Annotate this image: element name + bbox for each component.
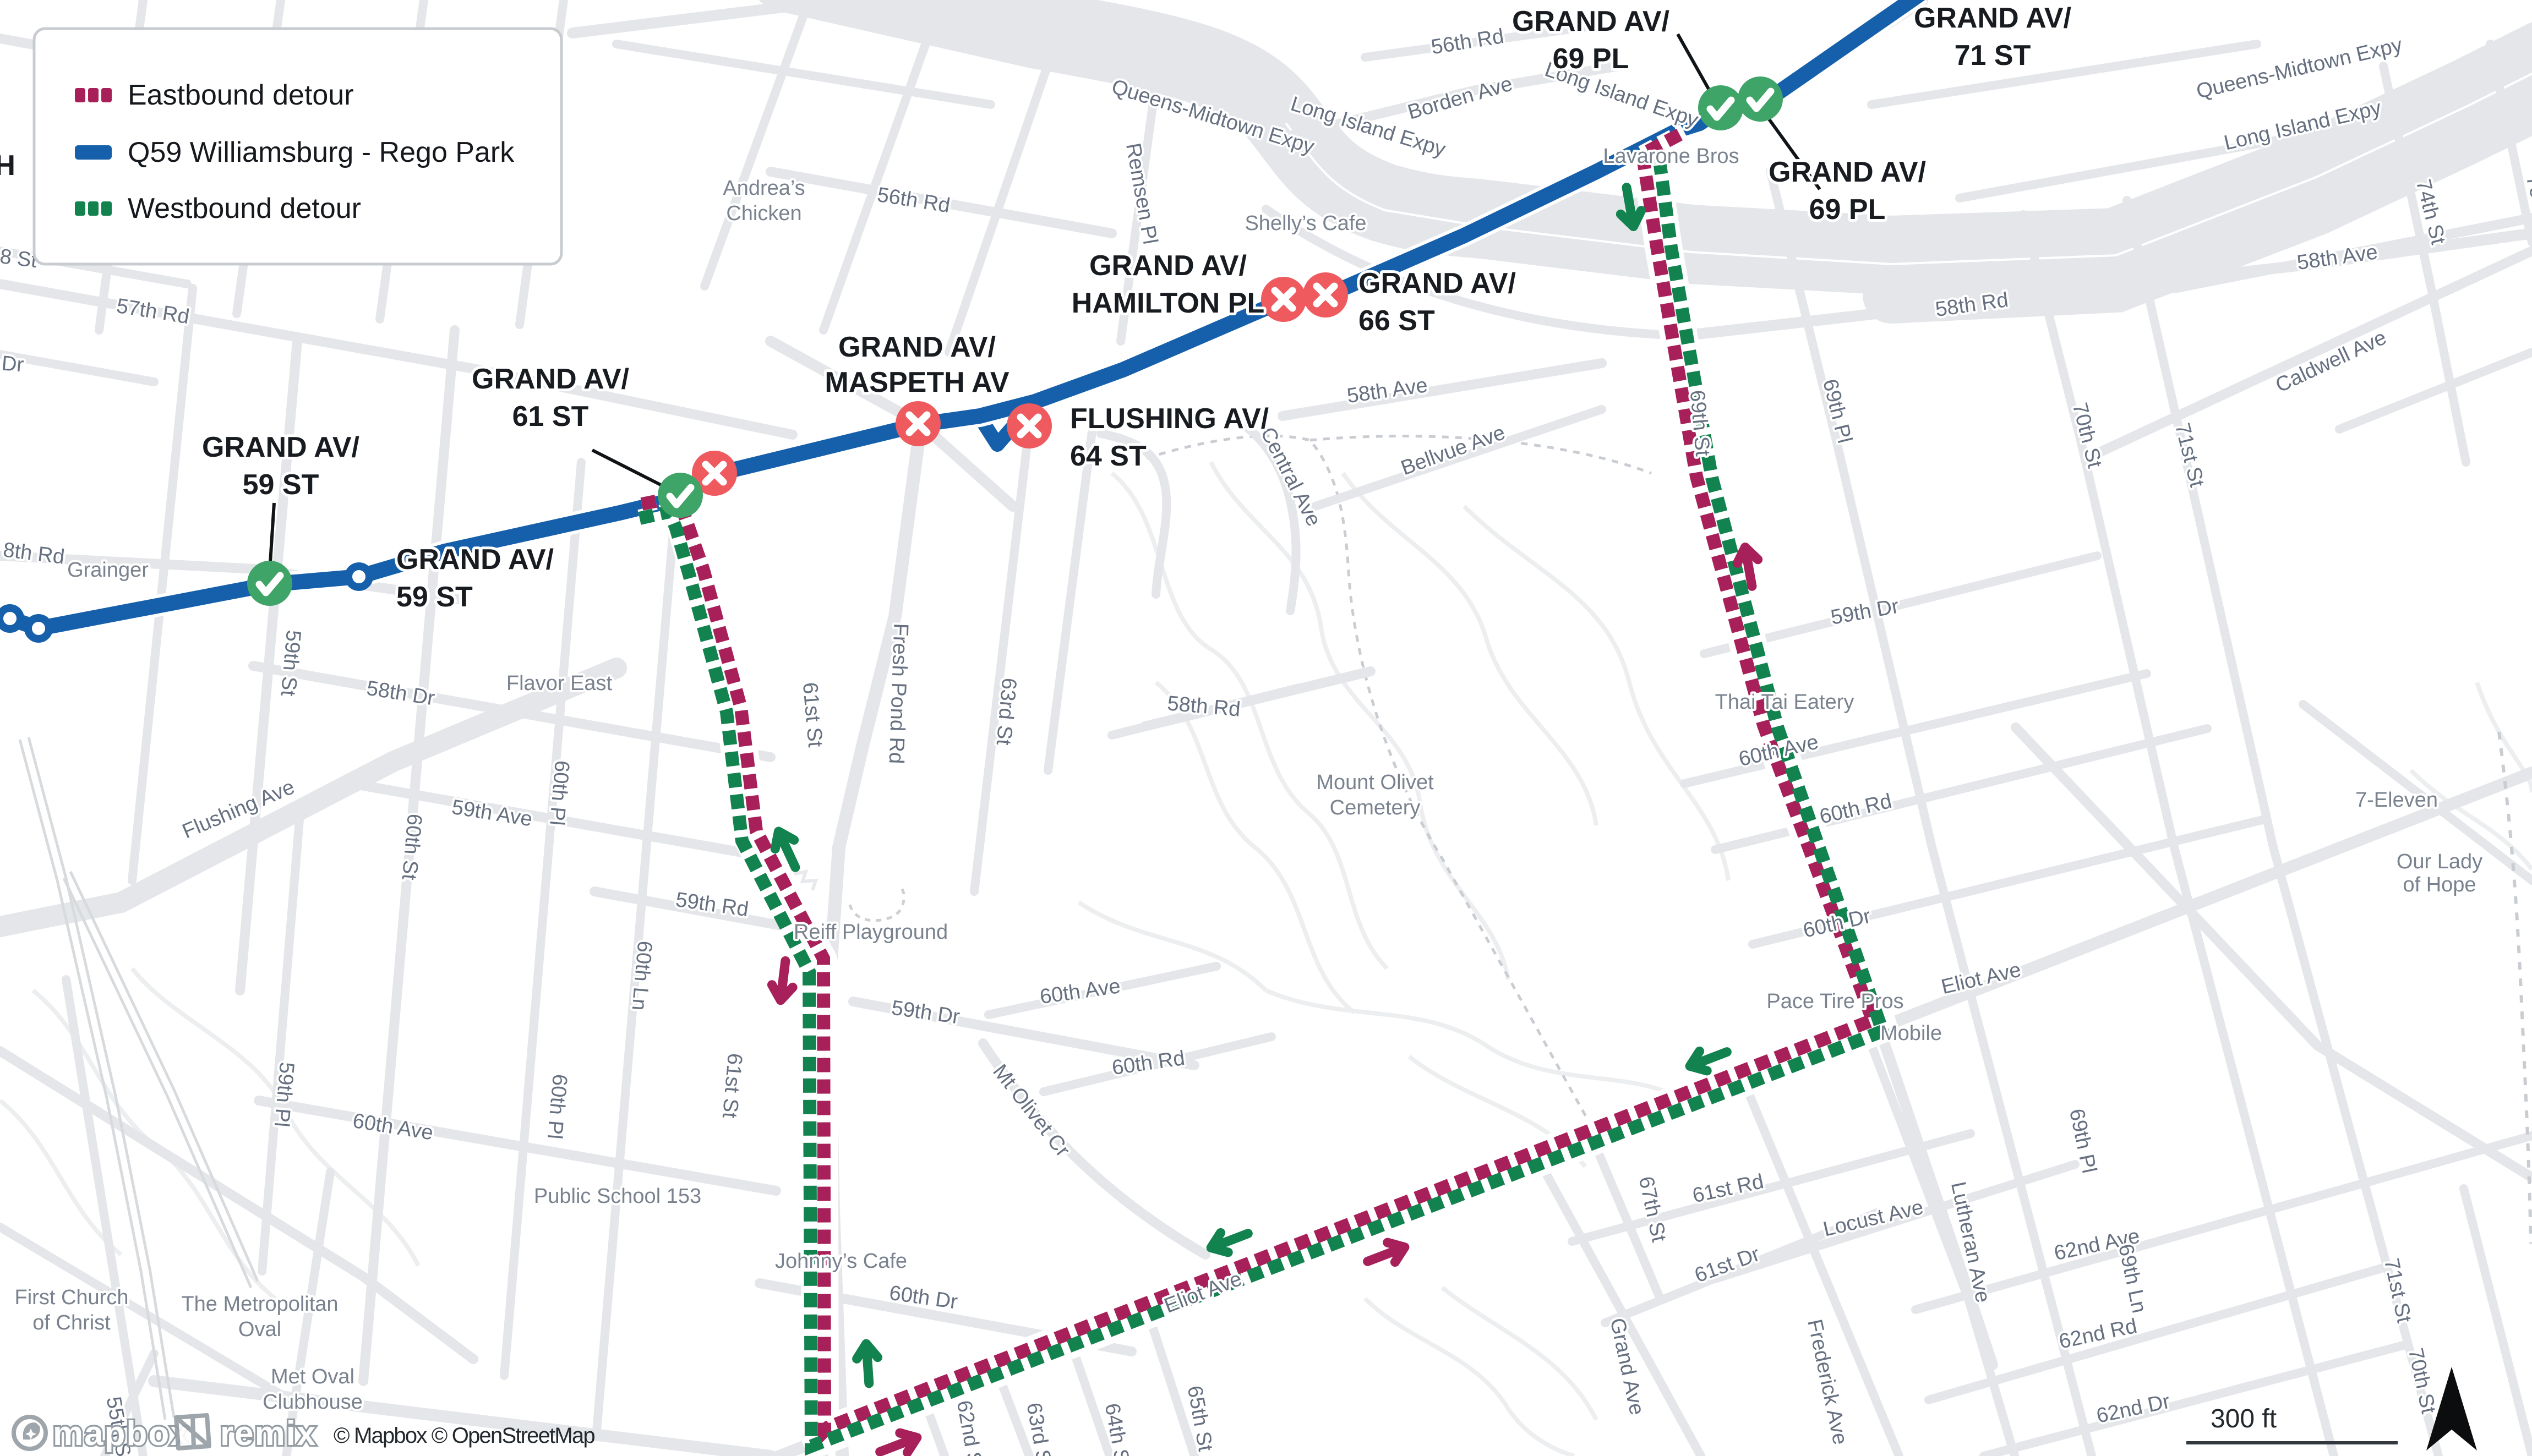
svg-text:Lavarone Bros: Lavarone Bros: [1603, 145, 1739, 168]
svg-text:Mount Olivet: Mount Olivet: [1316, 771, 1434, 794]
svg-text:of Christ: of Christ: [32, 1311, 111, 1334]
svg-text:Grainger: Grainger: [67, 559, 149, 582]
svg-text:TH: TH: [0, 150, 15, 182]
svg-text:Reiff Playground: Reiff Playground: [794, 921, 948, 944]
svg-text:MASPETH AV: MASPETH AV: [825, 366, 1009, 398]
svg-text:Our Lady: Our Lady: [2397, 850, 2482, 873]
svg-text:Thai Tai Eatery: Thai Tai Eatery: [1715, 691, 1854, 714]
svg-text:59 ST: 59 ST: [243, 469, 319, 501]
svg-text:GRAND AV/: GRAND AV/: [1358, 267, 1516, 299]
svg-text:Westbound detour: Westbound detour: [128, 193, 361, 225]
svg-text:GRAND AV/: GRAND AV/: [1914, 2, 2071, 34]
svg-text:66 ST: 66 ST: [1358, 305, 1435, 337]
svg-text:Eastbound detour: Eastbound detour: [128, 79, 354, 111]
svg-text:GRAND AV/: GRAND AV/: [472, 363, 629, 395]
svg-text:Q59 Williamsburg - Rego Park: Q59 Williamsburg - Rego Park: [128, 136, 515, 168]
svg-text:© Mapbox © OpenStreetMap: © Mapbox © OpenStreetMap: [334, 1424, 594, 1448]
svg-text:59 ST: 59 ST: [396, 581, 473, 613]
svg-text:First Church: First Church: [15, 1286, 129, 1309]
svg-text:Oval: Oval: [238, 1318, 281, 1341]
svg-text:Mobile: Mobile: [1880, 1022, 1942, 1045]
svg-text:GRAND AV/: GRAND AV/: [202, 431, 359, 463]
svg-text:Shelly’s Cafe: Shelly’s Cafe: [1245, 212, 1366, 235]
svg-text:GRAND AV/: GRAND AV/: [838, 331, 996, 363]
svg-text:GRAND AV/: GRAND AV/: [1089, 250, 1247, 282]
svg-text:7-Eleven: 7-Eleven: [2355, 789, 2438, 812]
svg-text:8 St: 8 St: [0, 245, 39, 272]
svg-text:Dr: Dr: [1, 352, 25, 376]
svg-text:69 PL: 69 PL: [1809, 194, 1886, 226]
svg-text:of Hope: of Hope: [2403, 873, 2476, 896]
svg-text:64 ST: 64 ST: [1070, 440, 1147, 472]
svg-text:Public School 153: Public School 153: [534, 1185, 701, 1208]
svg-text:Pace Tire Pros: Pace Tire Pros: [1766, 990, 1903, 1013]
svg-text:Andrea’s: Andrea’s: [723, 177, 805, 200]
svg-text:remix: remix: [220, 1415, 316, 1453]
svg-text:300 ft: 300 ft: [2211, 1404, 2277, 1433]
svg-text:71 ST: 71 ST: [1955, 40, 2031, 72]
svg-text:GRAND AV/: GRAND AV/: [396, 544, 554, 576]
svg-text:Met Oval: Met Oval: [271, 1365, 354, 1388]
svg-text:GRAND AV/: GRAND AV/: [1769, 156, 1926, 188]
svg-text:FLUSHING AV/: FLUSHING AV/: [1070, 403, 1269, 435]
svg-text:HAMILTON PL: HAMILTON PL: [1072, 287, 1265, 319]
svg-text:69 PL: 69 PL: [1553, 43, 1629, 75]
svg-text:Clubhouse: Clubhouse: [263, 1391, 363, 1414]
svg-text:The Metropolitan: The Metropolitan: [181, 1293, 338, 1316]
svg-text:Chicken: Chicken: [726, 202, 801, 225]
svg-text:Flavor East: Flavor East: [506, 672, 613, 695]
svg-text:Fresh Pond Rd: Fresh Pond Rd: [885, 623, 913, 764]
svg-text:mapbox: mapbox: [53, 1415, 190, 1453]
svg-text:Johnny’s Cafe: Johnny’s Cafe: [775, 1250, 907, 1273]
svg-text:GRAND AV/: GRAND AV/: [1512, 6, 1669, 37]
svg-text:61 ST: 61 ST: [512, 401, 589, 433]
svg-text:Cemetery: Cemetery: [1330, 796, 1421, 819]
